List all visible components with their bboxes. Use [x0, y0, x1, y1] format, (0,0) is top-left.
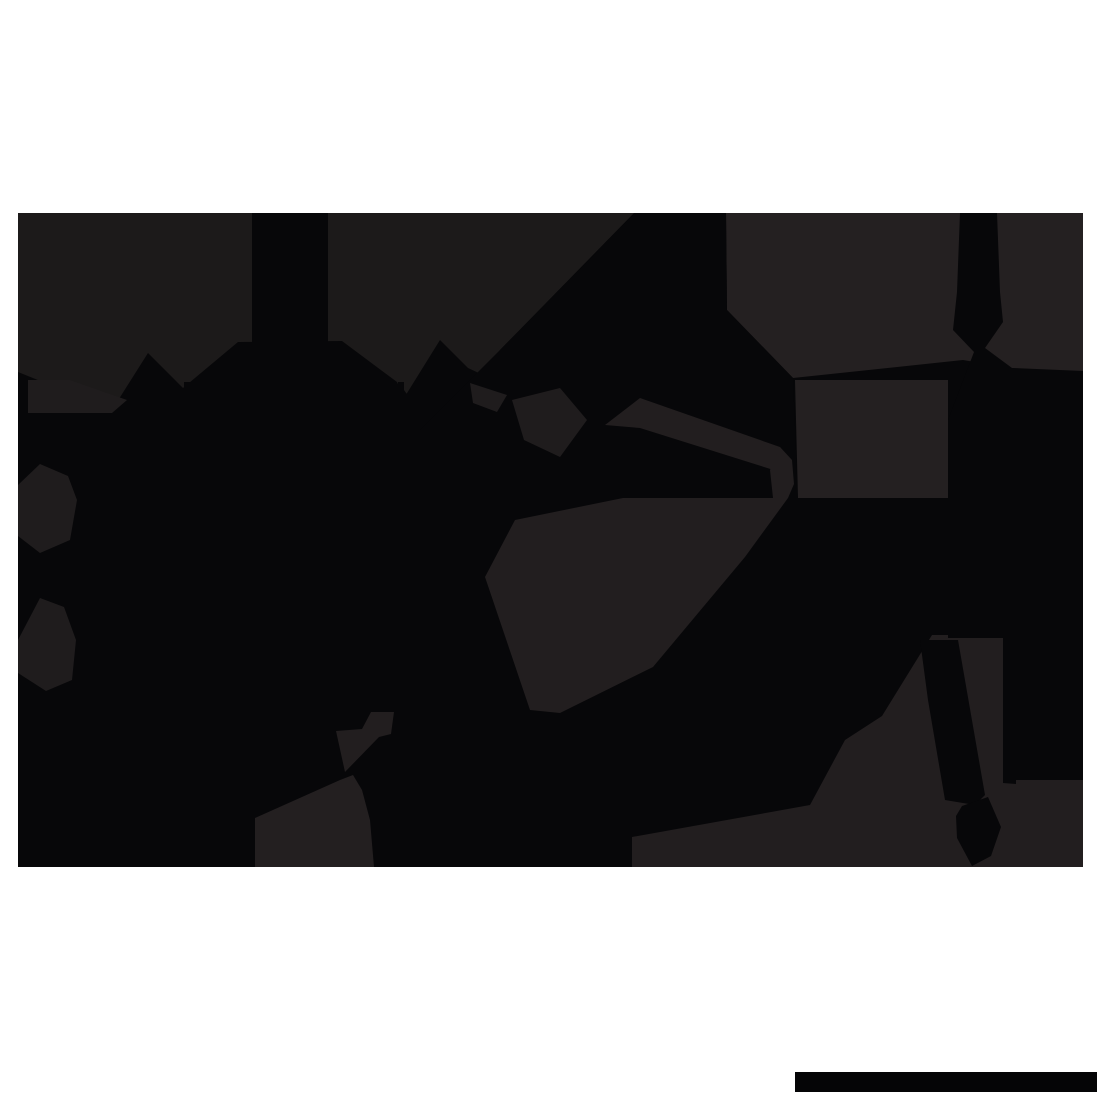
- right-flank-panel: [795, 380, 948, 498]
- silhouette-artwork: [0, 0, 1100, 1100]
- silhouette-canvas: [0, 0, 1100, 1100]
- sky-band-right: [726, 213, 1083, 378]
- right-lower-block: [1003, 636, 1083, 784]
- bottom-right-bar: [795, 1072, 1097, 1092]
- castle-tower: [252, 213, 328, 350]
- left-blob-upper: [18, 464, 77, 553]
